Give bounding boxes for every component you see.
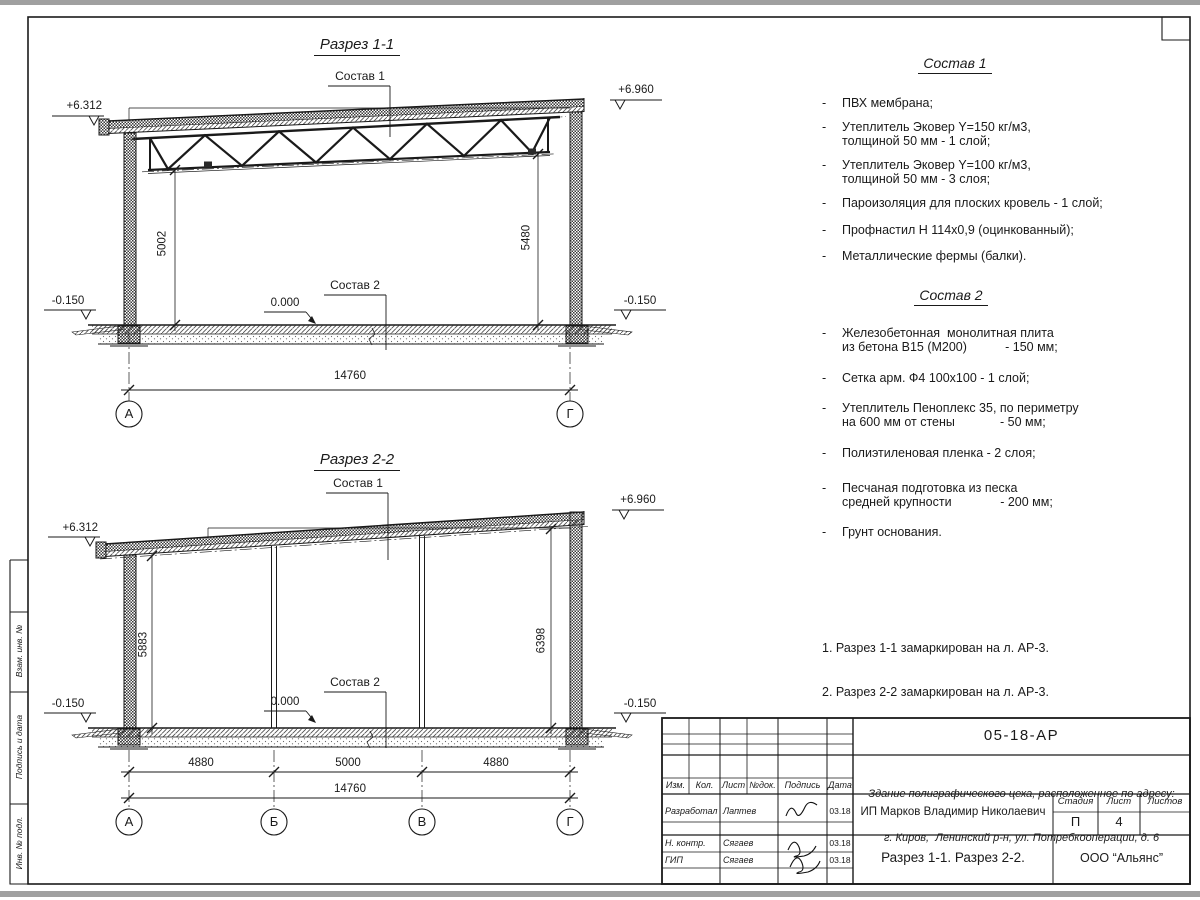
section2-dim-span-3: 4880	[454, 757, 538, 770]
titleblock-col-kol: Кол.	[689, 780, 720, 790]
titleblock-object-line2: г. Киров, Ленинский р-н, ул. Потребкоопе…	[858, 831, 1185, 846]
section2-sostav1-label: Состав 1	[329, 477, 387, 491]
list-item: -Утеплитель Эковер Y=150 кг/м3, толщиной…	[822, 120, 1152, 148]
section1-dim-height-right: 5480	[520, 208, 533, 268]
titleblock-col-list: Лист	[720, 780, 747, 790]
titleblock-company: ООО “Альянс”	[1053, 851, 1190, 865]
titleblock-sheet-value: 4	[1098, 815, 1140, 830]
section1-elev-zero: 0.000	[264, 297, 306, 310]
sostav1-heading: Состав 1	[900, 55, 1010, 71]
titleblock-col-izm: Изм.	[662, 780, 689, 790]
list-item: -Утеплитель Пеноплекс 35, по периметру н…	[822, 401, 1152, 429]
section1-elev-bottom-left: -0.150	[42, 295, 94, 308]
section1-elev-top-left: +6.312	[50, 100, 102, 113]
section2-elev-bottom-left: -0.150	[42, 698, 94, 711]
titleblock-sheet-label: Лист	[1098, 797, 1140, 808]
titleblock-col-doc: №док.	[747, 780, 778, 790]
titleblock-stage-label: Стадия	[1053, 797, 1098, 808]
titleblock-role-2: Н. контр.	[665, 838, 719, 848]
section2-axis-v: В	[409, 809, 435, 835]
note-line-1: 1. Разрез 1-1 замаркирован на л. АР-3.	[822, 641, 1049, 656]
titleblock-sheets-label: Листов	[1140, 797, 1190, 808]
titleblock-client: ИП Марков Владимир Николаевич	[855, 806, 1051, 819]
section2-title: Разрез 2-2	[292, 451, 422, 468]
section2-elev-zero: 0.000	[264, 696, 306, 709]
section2-dim-height-left: 5883	[137, 615, 150, 675]
side-label-vzam: Взам. инв. №	[14, 606, 24, 696]
titleblock-col-podpis: Подпись	[778, 780, 827, 790]
section1-dim-total: 14760	[305, 370, 395, 383]
signature-syagaev-2	[790, 858, 820, 874]
titleblock-name-2: Сягаев	[723, 838, 775, 848]
section2-sostav2-label: Состав 2	[326, 676, 384, 690]
section2-dim-span-2: 5000	[306, 757, 390, 770]
titleblock-role-1: Разработал	[665, 806, 719, 816]
signatures	[786, 802, 820, 873]
section2-dim-span-1: 4880	[159, 757, 243, 770]
list-item: -Железобетонная монолитная плита из бето…	[822, 326, 1152, 354]
list-item: -Песчаная подготовка из песка средней кр…	[822, 481, 1152, 509]
section1-sostav2-label: Состав 2	[326, 279, 384, 293]
list-item: -Сетка арм. Ф4 100х100 - 1 слой;	[822, 371, 1152, 385]
side-label-podpis: Подпись и дата	[14, 702, 24, 792]
section1-axis-a: А	[116, 401, 142, 427]
list-item: -Полиэтиленовая пленка - 2 слоя;	[822, 446, 1152, 460]
titleblock-date-1: 03.18	[827, 807, 853, 817]
section2-dim-total: 14760	[305, 783, 395, 796]
section1-title: Разрез 1-1	[292, 36, 422, 53]
titleblock-col-data: Дата	[827, 780, 853, 790]
list-item: -Утеплитель Эковер Y=100 кг/м3, толщиной…	[822, 158, 1152, 186]
list-item: -Металлические фермы (балки).	[822, 249, 1152, 263]
section1-floor	[72, 325, 632, 346]
list-item: -Грунт основания.	[822, 525, 1152, 539]
section2-elev-top-right: +6.960	[612, 494, 664, 507]
section2-elev-bottom-right: -0.150	[614, 698, 666, 711]
signature-laptev	[786, 802, 817, 816]
drawing-sheet: Разрез 1-1 Состав 1 +6.312 +6.960 5002 5…	[0, 0, 1200, 900]
list-item: -Профнастил Н 114х0,9 (оцинкованный);	[822, 223, 1152, 237]
titleblock-doc-code: 05-18-АР	[853, 727, 1190, 744]
section2-dim-height-right: 6398	[535, 611, 548, 671]
titleblock-name-3: Сягаев	[723, 855, 775, 865]
section2-elev-top-left: +6.312	[46, 522, 98, 535]
section2-axis-a: А	[116, 809, 142, 835]
list-item: -ПВХ мембрана;	[822, 96, 1152, 110]
side-label-inv: Инв. № подл.	[14, 798, 24, 888]
note-line-2: 2. Разрез 2-2 замаркирован на л. АР-3.	[822, 685, 1049, 700]
titleblock-date-2: 03.18	[827, 839, 853, 849]
section1-elev-top-right: +6.960	[610, 84, 662, 97]
section2-axis-g: Г	[557, 809, 583, 835]
sostav2-heading: Состав 2	[896, 287, 1006, 303]
list-item: -Пароизоляция для плоских кровель - 1 сл…	[822, 196, 1152, 210]
section1-axis-g: Г	[557, 401, 583, 427]
signature-syagaev-1	[788, 842, 816, 857]
section1-dim-height-left: 5002	[156, 214, 169, 274]
section1-sostav1-label: Состав 1	[331, 70, 389, 84]
titleblock-sheet-title: Разрез 1-1. Разрез 2-2.	[853, 850, 1053, 866]
notes: 1. Разрез 1-1 замаркирован на л. АР-3. 2…	[822, 612, 1049, 714]
titleblock-name-1: Лаптев	[723, 806, 775, 816]
titleblock-date-3: 03.18	[827, 856, 853, 866]
titleblock-stage-value: П	[1053, 815, 1098, 830]
section2-axis-b: Б	[261, 809, 287, 835]
titleblock-role-3: ГИП	[665, 855, 719, 865]
section1-elev-bottom-right: -0.150	[614, 295, 666, 308]
